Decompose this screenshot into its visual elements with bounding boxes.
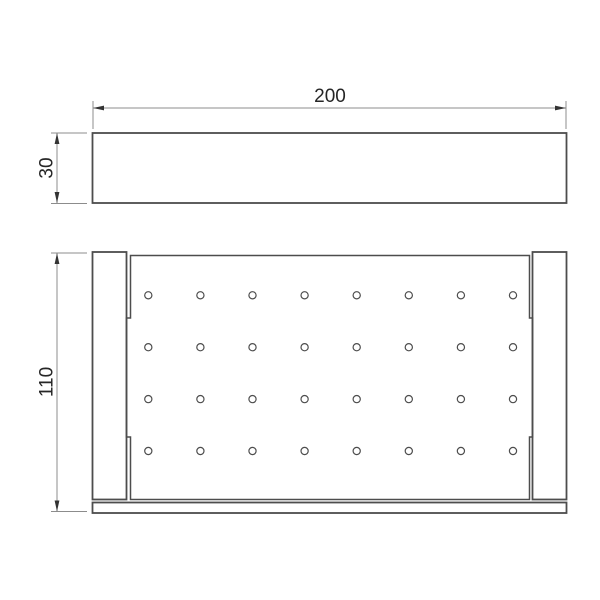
perforation-hole	[249, 447, 256, 454]
dimension-depth: 110	[37, 253, 88, 512]
technical-drawing-canvas: 200 30 110	[0, 0, 600, 600]
arrowhead-down-icon	[55, 192, 60, 203]
perforation-hole	[405, 292, 412, 299]
arrowhead-up-icon	[55, 133, 60, 144]
perforation-hole	[509, 344, 516, 351]
dimension-label-width: 200	[314, 86, 346, 107]
dimension-label-depth: 110	[37, 367, 58, 397]
left-rail	[93, 252, 127, 500]
perforation-hole	[249, 344, 256, 351]
perforation-hole	[457, 447, 464, 454]
plan-view	[93, 252, 567, 513]
arrowhead-down-icon	[55, 501, 60, 512]
perforated-plate-outline	[127, 256, 533, 500]
perforation-hole	[145, 344, 152, 351]
front-view	[93, 133, 567, 203]
perforation-hole	[405, 447, 412, 454]
right-rail	[533, 252, 567, 500]
perforation-hole	[249, 292, 256, 299]
perforation-hole	[145, 447, 152, 454]
perforation-hole	[353, 292, 360, 299]
arrowhead-left-icon	[93, 106, 104, 111]
perforation-hole	[145, 292, 152, 299]
perforation-hole	[197, 396, 204, 403]
bottom-lip	[93, 503, 567, 514]
perforation-hole	[509, 447, 516, 454]
perforation-hole	[457, 292, 464, 299]
dimension-label-height: 30	[37, 157, 58, 178]
perforation-hole	[457, 396, 464, 403]
perforation-hole	[301, 292, 308, 299]
front-view-outline	[93, 133, 567, 203]
perforation-hole	[457, 344, 464, 351]
perforation-hole	[249, 396, 256, 403]
perforation-hole	[301, 447, 308, 454]
perforation-hole	[301, 344, 308, 351]
perforation-hole	[353, 447, 360, 454]
perforation-hole	[405, 344, 412, 351]
perforation-hole	[509, 396, 516, 403]
dimension-width: 200	[93, 86, 566, 129]
perforation-hole	[509, 292, 516, 299]
arrowhead-up-icon	[55, 253, 60, 264]
perforation-hole	[145, 396, 152, 403]
dimension-height: 30	[37, 133, 88, 204]
perforation-hole	[197, 292, 204, 299]
drawing-svg: 200 30 110	[0, 0, 600, 600]
perforation-hole	[353, 344, 360, 351]
perforation-hole	[197, 344, 204, 351]
perforation-hole	[405, 396, 412, 403]
perforation-hole	[353, 396, 360, 403]
perforation-hole	[197, 447, 204, 454]
hole-grid	[145, 292, 517, 455]
perforation-hole	[301, 396, 308, 403]
arrowhead-right-icon	[555, 106, 566, 111]
